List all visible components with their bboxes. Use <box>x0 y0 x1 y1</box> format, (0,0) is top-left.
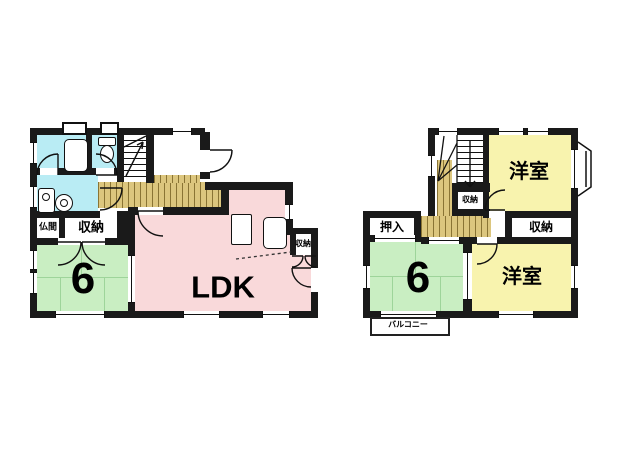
room-label-western-bottom: 洋室 <box>502 267 542 287</box>
window-bay-small <box>100 122 119 135</box>
washing-machine-drum <box>60 199 68 207</box>
room-label-ldk: LDK <box>191 272 255 303</box>
bay-window <box>578 142 591 196</box>
hallway-wood-floor <box>98 182 222 208</box>
stairs-2f <box>457 135 483 183</box>
room-label-butsuma: 仏間 <box>39 223 57 232</box>
window <box>498 311 534 318</box>
floor-plan-image: 仏間 収納 6 LDK 収納 洋室 収納 押入 収納 6 洋室 バルコニー <box>0 0 624 458</box>
hallway-2f-wood-floor <box>421 216 491 237</box>
sliding-door <box>374 235 416 242</box>
room-label-closet-left: 収納 <box>78 221 104 234</box>
window <box>30 250 37 270</box>
window <box>498 128 524 135</box>
window <box>30 272 37 294</box>
kitchen-counter <box>231 214 252 245</box>
window <box>55 311 105 318</box>
sliding-door <box>128 255 135 303</box>
stairs-2f-winder <box>435 135 457 160</box>
window <box>183 311 220 318</box>
window <box>571 265 578 289</box>
kitchen-floor <box>229 190 285 215</box>
sliding-door <box>428 237 460 244</box>
window <box>285 204 293 220</box>
room-label-closet-center-2f: 収納 <box>462 196 478 204</box>
room-label-tatami-size-2f: 6 <box>406 256 430 300</box>
window <box>262 311 290 318</box>
window <box>428 155 435 177</box>
sliding-door <box>463 252 472 300</box>
window-bay-small <box>62 122 87 135</box>
kitchen-sink <box>263 217 287 249</box>
hallway-wood-floor <box>154 175 200 183</box>
room-label-balcony: バルコニー <box>388 321 428 329</box>
stairs-1f <box>124 135 146 182</box>
window <box>527 128 549 135</box>
toilet-bowl <box>100 145 114 163</box>
room-label-western-top: 洋室 <box>509 162 549 182</box>
faucet <box>42 193 50 201</box>
room-label-oshiire: 押入 <box>380 221 404 233</box>
room-label-closet-right-2f: 収納 <box>529 221 553 233</box>
window <box>438 128 458 135</box>
window <box>172 128 192 135</box>
bathtub <box>64 139 88 172</box>
room-label-tatami-size-1f: 6 <box>71 257 95 301</box>
window <box>363 265 370 289</box>
window <box>571 149 578 189</box>
window <box>30 186 37 208</box>
window <box>30 142 37 164</box>
room-label-closet-right-1f: 収納 <box>295 240 311 248</box>
